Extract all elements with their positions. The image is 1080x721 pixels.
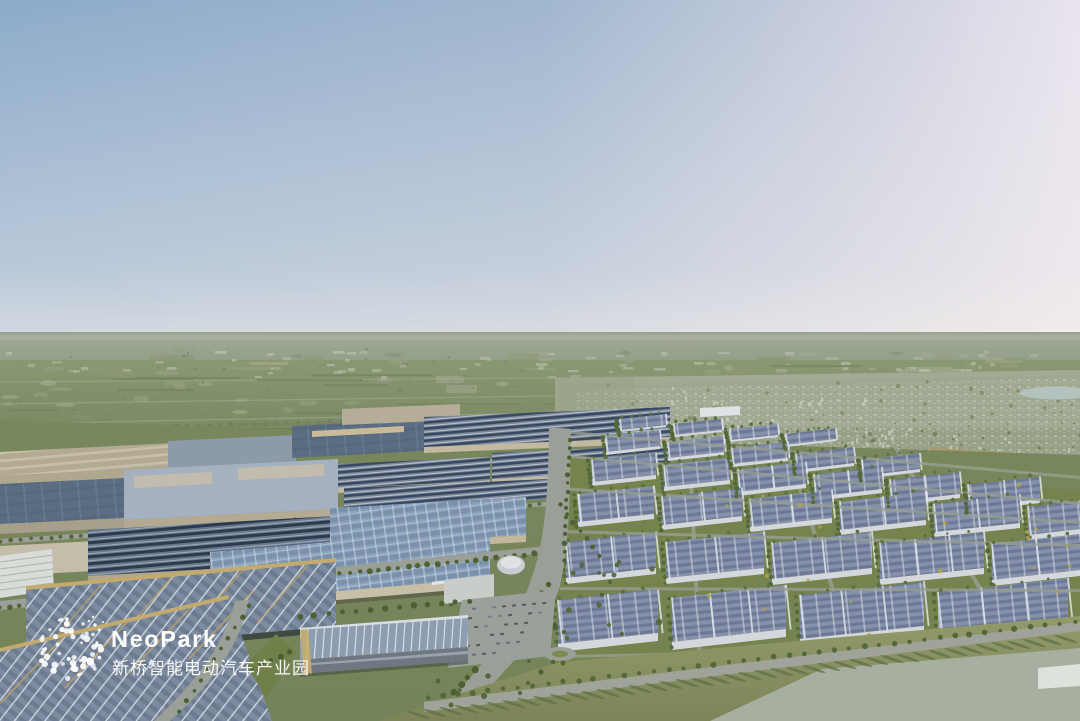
svg-text:新桥智能电动汽车产业园: 新桥智能电动汽车产业园 — [112, 659, 310, 678]
svg-text:NeoPark: NeoPark — [111, 626, 218, 652]
